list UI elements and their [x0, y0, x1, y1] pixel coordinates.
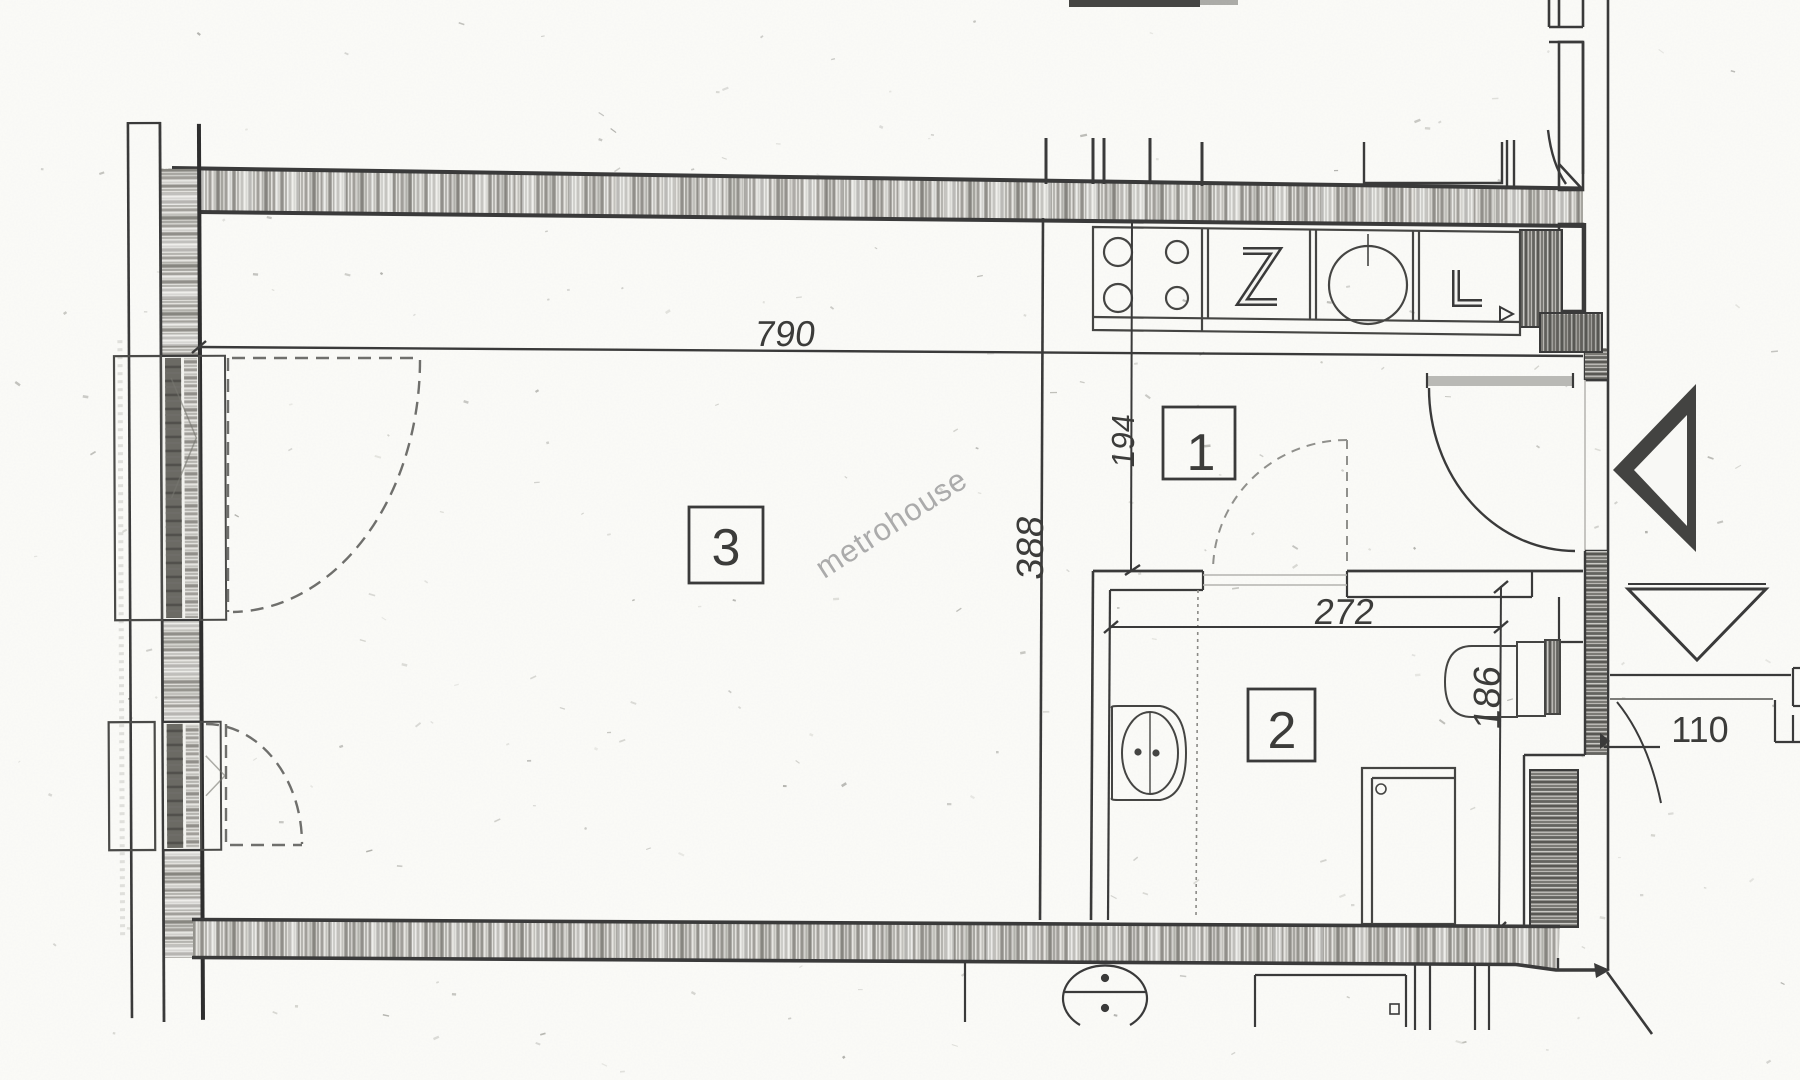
svg-text:388: 388: [1009, 513, 1052, 582]
svg-text:790: 790: [753, 313, 818, 354]
svg-text:3: 3: [712, 519, 741, 577]
svg-text:110: 110: [1671, 709, 1728, 750]
svg-text:2: 2: [1268, 702, 1297, 760]
svg-text:272: 272: [1312, 591, 1377, 632]
svg-text:1: 1: [1187, 424, 1216, 482]
svg-text:194: 194: [1105, 412, 1141, 470]
svg-text:186: 186: [1466, 663, 1509, 732]
